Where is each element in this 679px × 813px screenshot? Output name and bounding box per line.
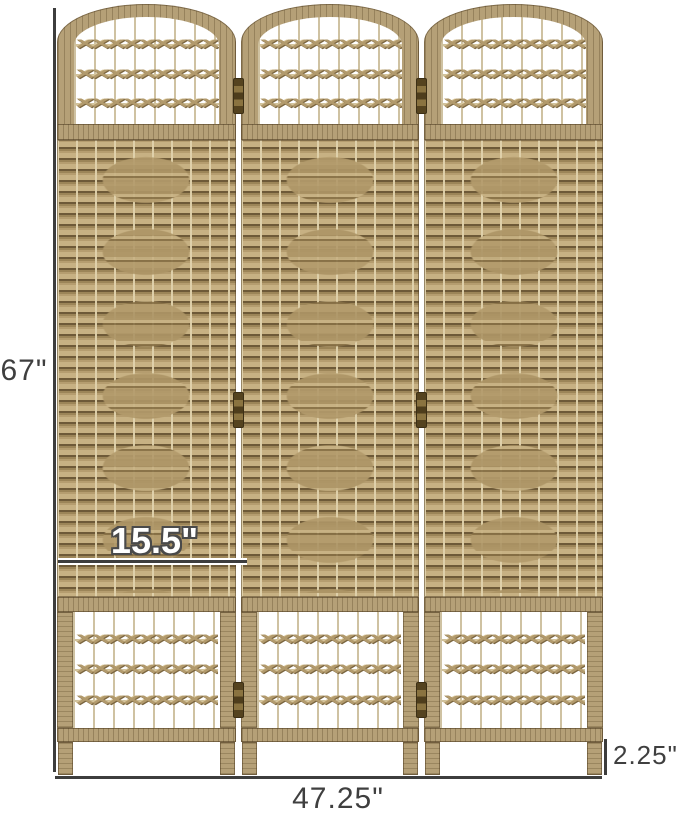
woven-knot-row: ✕✕✕✕✕✕✕✕✕ (259, 634, 402, 645)
panel-arch-top: ✕✕✕✕✕✕✕✕✕ ✕✕✕✕✕✕✕✕✕ ✕✕✕✕✕✕✕✕✕ (57, 4, 236, 140)
woven-knot-row: ✕✕✕✕✕✕✕✕✕ (441, 69, 586, 80)
woven-knot-row: ✕✕✕✕✕✕✕✕✕ (75, 634, 218, 645)
room-divider-figure: ✕✕✕✕✕✕✕✕✕ ✕✕✕✕✕✕✕✕✕ ✕✕✕✕✕✕✕✕✕ ✕✕✕✕✕✕✕✕✕ … (0, 0, 679, 813)
woven-knot-row: ✕✕✕✕✕✕✕✕✕ (75, 695, 218, 706)
panel-leg (403, 742, 418, 775)
woven-knot-row: ✕✕✕✕✕✕✕✕✕ (441, 98, 586, 109)
total-width-dimension-label: 47.25" (228, 782, 448, 813)
woven-knot-row: ✕✕✕✕✕✕✕✕✕ (259, 695, 402, 706)
panel-legs (57, 742, 236, 775)
panel-arch-top: ✕✕✕✕✕✕✕✕✕ ✕✕✕✕✕✕✕✕✕ ✕✕✕✕✕✕✕✕✕ (424, 4, 603, 140)
woven-knot-row: ✕✕✕✕✕✕✕✕✕ (259, 665, 402, 676)
lower-lattice: ✕✕✕✕✕✕✕✕✕ ✕✕✕✕✕✕✕✕✕ ✕✕✕✕✕✕✕✕✕ (73, 612, 220, 728)
frame-stile (587, 612, 603, 728)
panel-hinge (233, 78, 244, 114)
height-dimension-line (53, 8, 56, 772)
woven-knot-row: ✕✕✕✕✕✕✕✕✕ (74, 40, 219, 51)
frame-rail (57, 597, 236, 612)
divider-panel-3: ✕✕✕✕✕✕✕✕✕ ✕✕✕✕✕✕✕✕✕ ✕✕✕✕✕✕✕✕✕ ✕✕✕✕✕✕✕✕✕ … (424, 4, 603, 775)
woven-knot-row: ✕✕✕✕✕✕✕✕✕ (442, 634, 585, 645)
arch-frame: ✕✕✕✕✕✕✕✕✕ ✕✕✕✕✕✕✕✕✕ ✕✕✕✕✕✕✕✕✕ (424, 4, 603, 125)
divider-panel-2: ✕✕✕✕✕✕✕✕✕ ✕✕✕✕✕✕✕✕✕ ✕✕✕✕✕✕✕✕✕ ✕✕✕✕✕✕✕✕✕ … (241, 4, 420, 775)
lower-lattice-section: ✕✕✕✕✕✕✕✕✕ ✕✕✕✕✕✕✕✕✕ ✕✕✕✕✕✕✕✕✕ (57, 612, 236, 728)
woven-knot-row: ✕✕✕✕✕✕✕✕✕ (258, 69, 403, 80)
panel-width-dimension-label: 15.5" (72, 520, 237, 562)
height-dimension-label: 67" (0, 354, 48, 388)
lower-lattice: ✕✕✕✕✕✕✕✕✕ ✕✕✕✕✕✕✕✕✕ ✕✕✕✕✕✕✕✕✕ (257, 612, 404, 728)
panel-hinge (233, 392, 244, 428)
woven-knot-row: ✕✕✕✕✕✕✕✕✕ (441, 40, 586, 51)
arch-lattice: ✕✕✕✕✕✕✕✕✕ ✕✕✕✕✕✕✕✕✕ ✕✕✕✕✕✕✕✕✕ (258, 17, 403, 124)
lower-lattice-section: ✕✕✕✕✕✕✕✕✕ ✕✕✕✕✕✕✕✕✕ ✕✕✕✕✕✕✕✕✕ (424, 612, 603, 728)
woven-knot-row: ✕✕✕✕✕✕✕✕✕ (74, 98, 219, 109)
frame-stile (57, 612, 73, 728)
woven-knot-row: ✕✕✕✕✕✕✕✕✕ (75, 665, 218, 676)
frame-rail (241, 597, 420, 612)
panel-hinge (416, 392, 427, 428)
panel-hinge (416, 78, 427, 114)
frame-rail (241, 728, 420, 742)
leg-height-dimension-label: 2.25" (613, 740, 678, 771)
woven-knot-row: ✕✕✕✕✕✕✕✕✕ (258, 98, 403, 109)
frame-rail (424, 728, 603, 742)
arch-frame: ✕✕✕✕✕✕✕✕✕ ✕✕✕✕✕✕✕✕✕ ✕✕✕✕✕✕✕✕✕ (241, 4, 420, 125)
panel-arch-top: ✕✕✕✕✕✕✕✕✕ ✕✕✕✕✕✕✕✕✕ ✕✕✕✕✕✕✕✕✕ (241, 4, 420, 140)
arch-lattice: ✕✕✕✕✕✕✕✕✕ ✕✕✕✕✕✕✕✕✕ ✕✕✕✕✕✕✕✕✕ (441, 17, 586, 124)
lower-lattice: ✕✕✕✕✕✕✕✕✕ ✕✕✕✕✕✕✕✕✕ ✕✕✕✕✕✕✕✕✕ (440, 612, 587, 728)
woven-knot-row: ✕✕✕✕✕✕✕✕✕ (442, 665, 585, 676)
frame-rail (241, 124, 420, 140)
panel-leg (587, 742, 602, 775)
total-width-dimension-line (55, 776, 602, 779)
frame-rail (57, 124, 236, 140)
panel-hinge (233, 682, 244, 718)
frame-rail (424, 124, 603, 140)
panel-leg (425, 742, 440, 775)
panel-legs (241, 742, 420, 775)
arch-lattice: ✕✕✕✕✕✕✕✕✕ ✕✕✕✕✕✕✕✕✕ ✕✕✕✕✕✕✕✕✕ (74, 17, 219, 124)
arch-frame: ✕✕✕✕✕✕✕✕✕ ✕✕✕✕✕✕✕✕✕ ✕✕✕✕✕✕✕✕✕ (57, 4, 236, 125)
woven-knot-row: ✕✕✕✕✕✕✕✕✕ (258, 40, 403, 51)
panel-leg (58, 742, 73, 775)
leg-height-dimension-line (604, 739, 607, 775)
frame-rail (424, 597, 603, 612)
panel-leg (242, 742, 257, 775)
divider-panels: ✕✕✕✕✕✕✕✕✕ ✕✕✕✕✕✕✕✕✕ ✕✕✕✕✕✕✕✕✕ ✕✕✕✕✕✕✕✕✕ … (57, 4, 603, 775)
panel-leg (220, 742, 235, 775)
woven-knot-row: ✕✕✕✕✕✕✕✕✕ (442, 695, 585, 706)
panel-legs (424, 742, 603, 775)
panel-hinge (416, 682, 427, 718)
woven-knot-row: ✕✕✕✕✕✕✕✕✕ (74, 69, 219, 80)
wicker-weave-section (241, 140, 420, 597)
lower-lattice-section: ✕✕✕✕✕✕✕✕✕ ✕✕✕✕✕✕✕✕✕ ✕✕✕✕✕✕✕✕✕ (241, 612, 420, 728)
wicker-weave-section (424, 140, 603, 597)
frame-rail (57, 728, 236, 742)
divider-panel-1: ✕✕✕✕✕✕✕✕✕ ✕✕✕✕✕✕✕✕✕ ✕✕✕✕✕✕✕✕✕ ✕✕✕✕✕✕✕✕✕ … (57, 4, 236, 775)
